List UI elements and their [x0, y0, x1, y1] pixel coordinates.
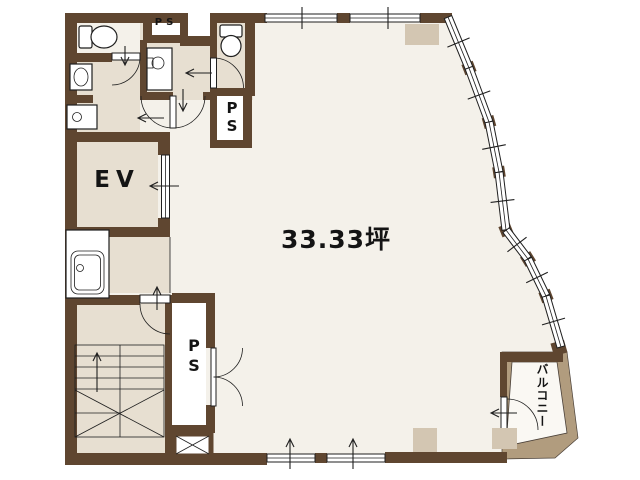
pipe-shaft-top-label: PS [147, 17, 185, 28]
washbasin-icon [147, 48, 172, 90]
pipe-shaft-right-label: P S [221, 99, 243, 135]
toilet-icon [79, 26, 117, 48]
elevator-label: EV [83, 167, 151, 193]
area-label: 33.33坪 [254, 220, 418, 256]
exterior-notch [188, 13, 210, 38]
shaft-box [174, 434, 211, 456]
hand-basin-icon [67, 105, 97, 129]
floor-plan: 33.33坪 EV PS P S P S バルコニー [0, 0, 640, 480]
toilet-icon [220, 25, 242, 57]
balcony-label: バルコニー [534, 363, 551, 443]
urinal-icon [70, 64, 92, 90]
pipe-shaft-bottom-label: P S [183, 336, 205, 376]
